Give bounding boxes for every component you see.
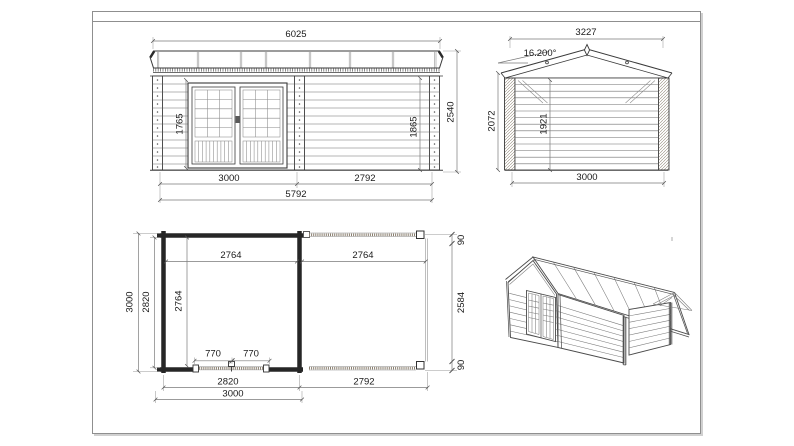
front-bottom-dims: 3000 2792 5792 — [160, 172, 432, 203]
plan-dim-cabin-total-width-label: 3000 — [222, 389, 243, 400]
plan-inner-width-dims: 2764 2764 — [166, 250, 426, 262]
plan-left-dims: 3000 2820 — [125, 234, 161, 372]
front-roof — [150, 51, 443, 76]
plan-door-opening — [193, 362, 269, 373]
front-elevation-view: 6025 1765 186 — [100, 22, 475, 212]
plan-dim-cabin-inner-width-label: 2764 — [220, 250, 241, 261]
side-dim-roof-width-label: 3227 — [575, 27, 596, 38]
front-dim-door-height-label: 1765 — [175, 113, 186, 134]
plan-dim-cabin-width-label: 2820 — [217, 377, 238, 388]
plan-door-dims: 770 770 — [195, 349, 270, 365]
plan-dim-canopy-depth-label: 2584 — [456, 292, 467, 313]
plan-dim-canopy-inner-width-label: 2764 — [352, 250, 373, 261]
side-dim-depth-label: 3000 — [576, 172, 597, 183]
side-walls — [505, 78, 670, 170]
front-dim-overall-width: 6025 — [153, 29, 440, 49]
iso-3d-view — [480, 230, 698, 398]
side-dim-depth: 3000 — [512, 172, 664, 187]
front-dim-overall-height: 2540 — [443, 51, 461, 172]
door-handle — [236, 116, 240, 123]
front-dim-cabin-width-label: 3000 — [218, 173, 239, 184]
floor-plan-view: 2764 2764 2764 3000 2820 770 770 90 2584 — [100, 212, 475, 410]
plan-inner-depth-dim: 2764 — [174, 238, 188, 367]
plan-door-handle — [229, 362, 235, 367]
side-elevation-view: 3227 16.200° 2072 1921 3000 — [478, 22, 695, 212]
plan-dim-depth-wall-label: 2820 — [141, 291, 152, 312]
side-dim-eave-height-label: 2072 — [487, 110, 498, 131]
front-dim-total-width-label: 5792 — [285, 189, 306, 200]
side-roof-angle-label: 16.200° — [524, 48, 557, 59]
plan-right-dims: 90 2584 90 — [425, 232, 467, 373]
drawing-sheet: { "colors": { "line": "#3a3a3a", "dimens… — [0, 0, 794, 446]
plan-dim-door-right-label: 770 — [243, 349, 259, 360]
front-dim-opening-height-label: 1865 — [409, 116, 420, 137]
iso-double-door — [527, 291, 556, 342]
plan-dim-depth-overall-label: 3000 — [125, 291, 136, 312]
frame-title-strip — [93, 12, 700, 22]
plan-bottom-dims: 2820 2792 3000 — [156, 372, 428, 403]
side-dim-interior-height-label: 1921 — [539, 113, 550, 134]
front-dim-overall-height-label: 2540 — [446, 101, 457, 122]
front-double-door — [188, 83, 287, 168]
plan-dim-cabin-inner-depth-label: 2764 — [174, 290, 185, 311]
plan-dim-post-top-label: 90 — [456, 235, 467, 246]
plan-dim-canopy-width-label: 2792 — [353, 377, 374, 388]
front-dim-canopy-width-label: 2792 — [354, 173, 375, 184]
plan-post-top — [417, 231, 425, 239]
plan-post-bottom — [417, 362, 425, 370]
plan-dim-post-bottom-label: 90 — [456, 360, 467, 371]
front-dim-overall-width-label: 6025 — [285, 29, 306, 40]
plan-dim-door-left-label: 770 — [205, 349, 221, 360]
side-dim-eave-height: 2072 — [487, 73, 499, 170]
